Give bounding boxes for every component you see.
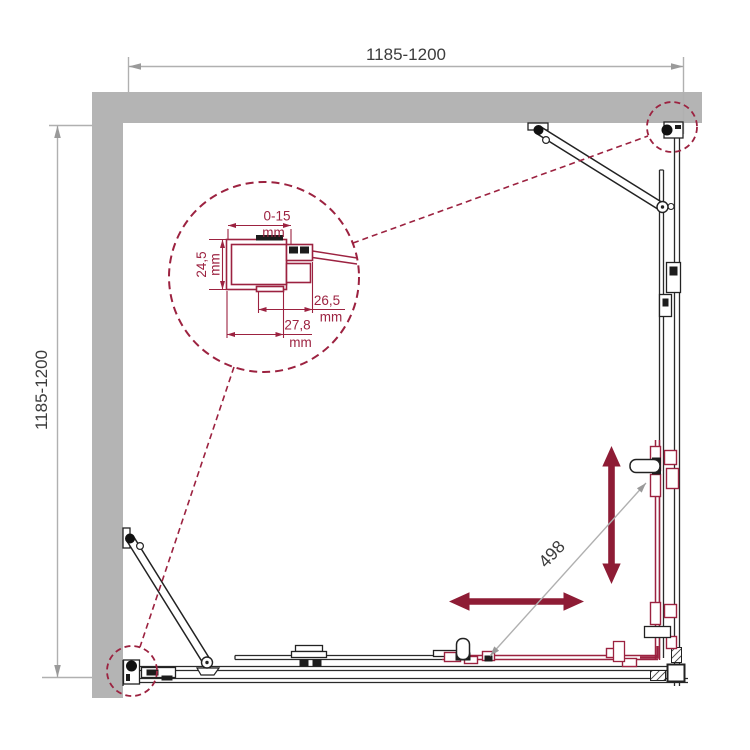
roller-bar (614, 642, 625, 662)
adjustment-unit: mm (262, 225, 285, 240)
dim-arrow-top (54, 126, 61, 139)
door-roller (667, 637, 677, 649)
dim-profile-width: 24,5 mm (194, 240, 226, 290)
corner-hatch (672, 648, 682, 663)
corner-joint-block (668, 665, 685, 682)
inner-depth-value: 26,5 (314, 293, 340, 308)
profile-cross-section (227, 235, 358, 292)
glass-pivot-dot (205, 661, 208, 664)
support-arm-bar (540, 131, 662, 207)
door-roller (651, 603, 661, 625)
corner-hatch (651, 671, 666, 681)
wall-top (92, 92, 702, 123)
support-arm-bottom-left (123, 528, 219, 675)
door-roller (667, 469, 679, 489)
walls (92, 92, 702, 698)
technical-drawing-page: 1185-1200 1185-1200 (0, 0, 750, 750)
door-stopper (485, 656, 493, 662)
profile-detail (675, 125, 681, 129)
dimension-diagonal: 498 (490, 483, 646, 656)
wall-channel-inner (232, 245, 287, 285)
profile-knob (126, 661, 137, 672)
roller-bar (645, 627, 671, 638)
outer-depth-value: 27,8 (284, 318, 310, 333)
bracket-detail (162, 676, 173, 681)
detail-callout (107, 102, 697, 696)
pivot-bolt (534, 125, 544, 135)
dim-arrow-right (671, 63, 684, 70)
clamp-block (300, 247, 309, 254)
diagonal-dimension-label: 498 (534, 536, 569, 571)
clamp-block (289, 247, 298, 254)
door-handle (630, 460, 660, 473)
bottom-fixed-glass (235, 656, 442, 660)
clamp-detail (663, 299, 669, 307)
arm-screw (543, 137, 550, 144)
diagonal-dim-line (490, 483, 646, 656)
wall-left (92, 92, 123, 698)
door-roller (651, 475, 661, 497)
glass-pivot-dot (661, 205, 664, 208)
inner-depth-unit: mm (320, 310, 343, 325)
glass-panel-edge (313, 251, 358, 264)
bottom-sliding-door (434, 639, 659, 667)
door-roller (665, 605, 677, 618)
wall-profile-bottom-left (124, 660, 140, 684)
arm-screw (668, 204, 674, 210)
movement-arrows (449, 446, 621, 611)
support-arm-top-right (528, 123, 674, 213)
profile-width-unit: mm (208, 253, 223, 276)
roller-plate (296, 646, 323, 652)
shower-enclosure-plan-drawing: 1185-1200 1185-1200 (0, 0, 750, 750)
roller-wheel (300, 660, 309, 667)
arm-screw (137, 543, 144, 550)
width-dimension-label: 1185-1200 (366, 45, 446, 64)
door-roller (665, 451, 677, 465)
adjustment-value: 0-15 (263, 209, 290, 224)
door-handle (457, 639, 470, 660)
profile-knob (662, 125, 673, 136)
roller-wheel (313, 660, 322, 667)
dim-arrow-bottom (54, 665, 61, 678)
outer-depth-unit: mm (289, 335, 312, 350)
arm-foot-plate (197, 668, 219, 675)
wall-profile-top-right (662, 122, 684, 138)
dimension-depth: 1185-1200 (32, 126, 92, 678)
roller-plate (292, 652, 327, 658)
profile-detail (126, 674, 130, 681)
clamp-detail (670, 267, 678, 276)
callout-leader-line (353, 136, 648, 243)
callout-leader-line (140, 367, 234, 647)
pivot-bolt (125, 534, 135, 544)
right-sliding-door (630, 440, 679, 660)
profile-bottom-lip (257, 287, 284, 292)
horizontal-slide-arrow (449, 592, 584, 610)
depth-dimension-label: 1185-1200 (32, 350, 51, 430)
profile-lower-chamber (287, 264, 311, 283)
dim-arrow-left (129, 63, 142, 70)
dim-outer-depth: 27,8 mm (227, 291, 312, 350)
